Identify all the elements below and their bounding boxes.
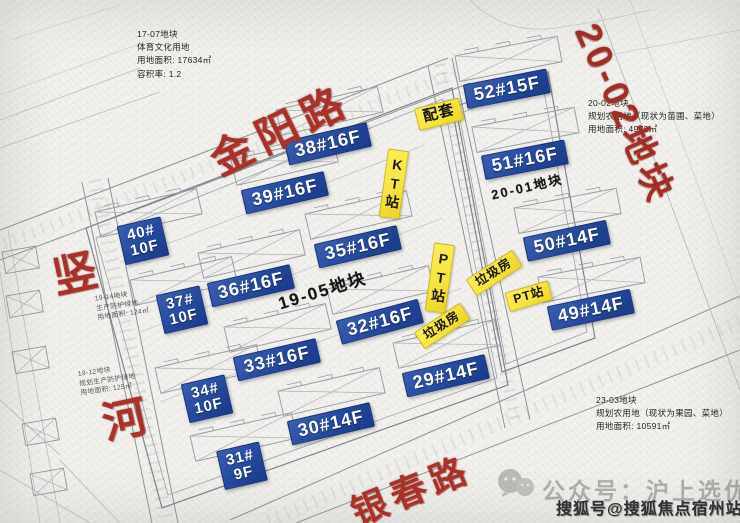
site-plan-map: 17-07地块 体育文化用地 用地面积: 17634㎡ 容积率: 1.2 20-… [0, 0, 740, 523]
plot-info-line: 容积率: 1.2 [137, 68, 211, 81]
plot-info-line: 体育文化用地 [137, 41, 211, 54]
plot-info-17-07: 17-07地块 体育文化用地 用地面积: 17634㎡ 容积率: 1.2 [137, 28, 211, 81]
plot-info-line: 23-03地块 [596, 394, 728, 407]
plot-info-line: 用地面积: 10591㎡ [596, 420, 728, 433]
wechat-icon [496, 468, 536, 500]
plot-info-line: 17-07地块 [137, 28, 211, 41]
watermark-sohu-account: 搜狐号@搜狐焦点宿州站 [556, 495, 740, 519]
plot-info-line: 用地面积: 17634㎡ [137, 54, 211, 67]
plot-info-23-03: 23-03地块 规划农用地（现状为果园、菜地） 用地面积: 10591㎡ [596, 394, 728, 434]
plot-info-line: 规划农用地（现状为果园、菜地） [596, 407, 728, 420]
